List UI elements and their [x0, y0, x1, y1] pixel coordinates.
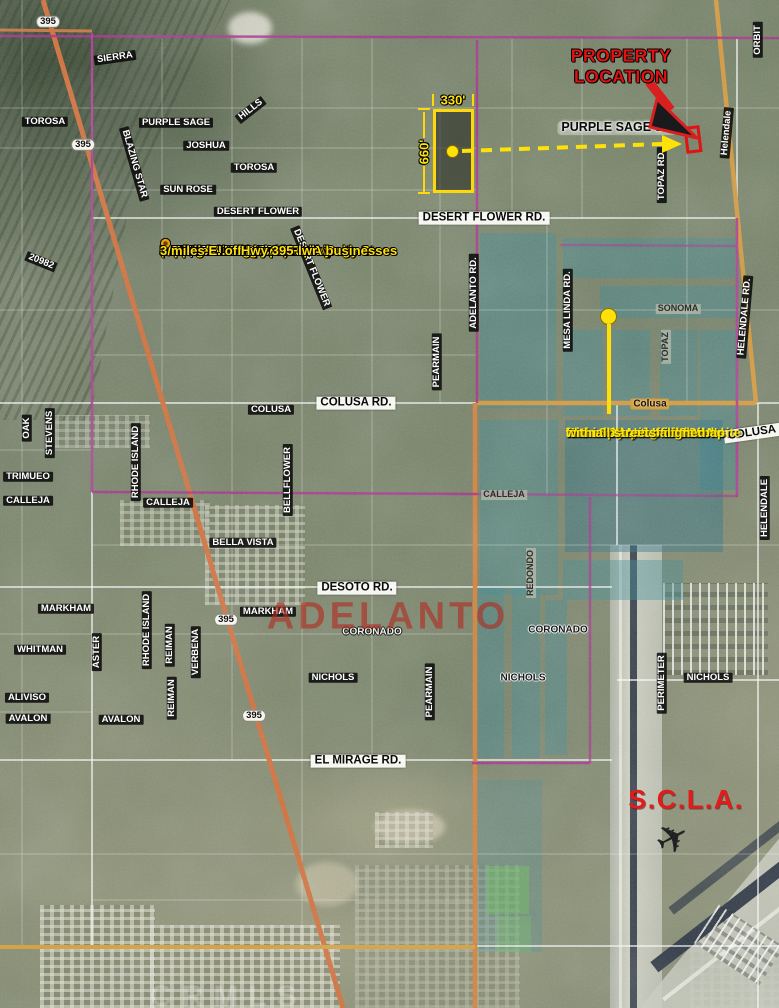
note-line: with all streets aligned. — [566, 426, 709, 441]
property-location-line2: LOCATION — [574, 67, 668, 88]
aerial-map: ✈ — [0, 0, 779, 1008]
arrows-layer — [0, 0, 779, 1008]
city-name-label: ADELANTO — [267, 596, 509, 639]
watermark: CRMLS — [150, 980, 450, 1008]
airport-name-label: S.C.L.A. — [628, 785, 744, 816]
property-location-line1: PROPERTY — [571, 46, 671, 67]
